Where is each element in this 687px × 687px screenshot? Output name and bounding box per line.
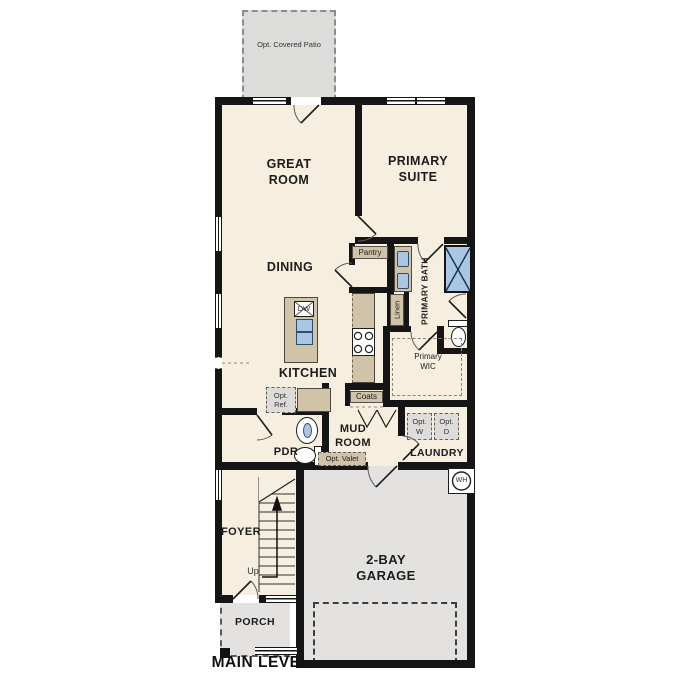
patio-label-text: Opt. Covered Patio — [257, 40, 321, 49]
wall-kitchen-bottom — [345, 383, 390, 390]
stove — [352, 328, 375, 356]
room-label-mud-room: MUD ROOM — [329, 422, 377, 452]
room-label-porch: PORCH — [229, 616, 281, 630]
room-label-laundry: LAUNDRY — [405, 447, 469, 461]
wall-wic-bottom-laundry-top — [383, 400, 475, 407]
pdr-sink-basin — [303, 423, 312, 438]
room-label-great-room: GREAT ROOM — [252, 156, 326, 190]
wall-wic-left — [383, 326, 390, 404]
room-label-foyer: FOYER — [221, 526, 261, 540]
room-label-primary-bath: PRIMARY BATH — [412, 255, 438, 327]
wall-mud-laundry-divider — [398, 407, 405, 436]
dining-text: DINING — [267, 260, 313, 276]
room-label-primary-suite: PRIMARY SUITE — [379, 153, 457, 187]
opt-refrigerator-box: Opt. Ref. — [266, 387, 296, 413]
opt-washer-box: Opt. W — [407, 413, 432, 440]
pantry-label: Pantry — [352, 246, 388, 259]
vanity-sink-2 — [397, 273, 409, 289]
wall-stairs-garage — [296, 462, 304, 668]
wall-exterior-right — [467, 97, 475, 668]
up-text: Up — [247, 566, 259, 577]
opt-valet-box: Opt. Valet — [318, 452, 366, 466]
shower — [444, 245, 472, 293]
wall-break-dashed — [215, 357, 222, 369]
room-label-primary-wic: Primary WIC — [406, 350, 450, 374]
wall-pdr-top-left — [222, 408, 257, 415]
linen-text: Linen — [392, 301, 401, 319]
porch-text: PORCH — [235, 616, 275, 629]
wh-text: WH — [456, 477, 468, 486]
opt-valet-text: Opt. Valet — [326, 454, 359, 463]
great-room-text: GREAT ROOM — [252, 157, 326, 188]
vanity-sink-1 — [397, 251, 409, 267]
foyer-text: FOYER — [221, 526, 261, 540]
primary-wic-text: Primary WIC — [411, 352, 445, 372]
plan-title: MAIN LEVEL — [206, 654, 316, 672]
main-level-text: MAIN LEVEL — [212, 653, 311, 672]
room-label-kitchen: KITCHEN — [272, 366, 344, 382]
water-heater-label: WH — [452, 475, 471, 487]
pantry-text: Pantry — [358, 248, 381, 258]
wall-bath-bottom-left — [387, 326, 411, 332]
opt-washer-label: Opt. W — [412, 417, 428, 436]
wall-greatroom-primary-divider — [355, 105, 362, 216]
opt-ref-label: Opt. Ref. — [272, 391, 290, 410]
room-label-pdr: PDR — [268, 446, 304, 460]
room-label-garage: 2-BAY GARAGE — [354, 550, 418, 586]
window-foyer-left — [215, 470, 222, 500]
opt-dryer-label: Opt. D — [439, 417, 455, 436]
opt-ref-cabinet — [297, 388, 331, 412]
garage-door-dashed-outline — [313, 602, 457, 664]
dishwasher-label: DW — [294, 303, 314, 315]
primary-bath-text: PRIMARY BATH — [420, 257, 431, 325]
door-opening-front — [233, 595, 259, 603]
wall-primary-suite-bottom-right — [444, 237, 475, 244]
window-primary-suite-1 — [387, 97, 415, 105]
dw-text: DW — [298, 304, 311, 313]
island-sink-lower — [296, 332, 313, 345]
window-primary-suite-2 — [417, 97, 445, 105]
wall-linen-right — [404, 292, 409, 326]
mud-room-text: MUD ROOM — [329, 423, 377, 451]
kitchen-text: KITCHEN — [279, 366, 337, 382]
garage-text: 2-BAY GARAGE — [354, 552, 418, 585]
window-great-room-top — [253, 97, 286, 105]
opt-covered-patio-area — [242, 10, 336, 101]
window-left-2 — [215, 294, 222, 328]
wall-garage-bottom — [296, 660, 475, 668]
floor-plan: Opt. Ref. Opt. W Opt. D — [0, 0, 687, 687]
stairs-up-label: Up — [243, 566, 263, 578]
patio-label: Opt. Covered Patio — [247, 38, 331, 52]
coats-label: Coats — [350, 391, 383, 403]
linen-label: Linen — [390, 294, 404, 326]
opt-dryer-box: Opt. D — [434, 413, 459, 440]
island-sink-upper — [296, 319, 313, 332]
door-opening-patio — [291, 97, 321, 105]
wall-front-left — [215, 595, 233, 603]
pdr-text: PDR — [274, 446, 298, 460]
window-foyer-front — [266, 595, 296, 603]
coats-text: Coats — [356, 392, 377, 402]
bath-toilet-tank — [448, 320, 468, 327]
wall-pdr-foyer — [222, 462, 296, 470]
primary-suite-text: PRIMARY SUITE — [379, 154, 457, 185]
room-label-dining: DINING — [258, 260, 322, 276]
window-left-1 — [215, 217, 222, 251]
laundry-text: LAUNDRY — [410, 447, 464, 460]
